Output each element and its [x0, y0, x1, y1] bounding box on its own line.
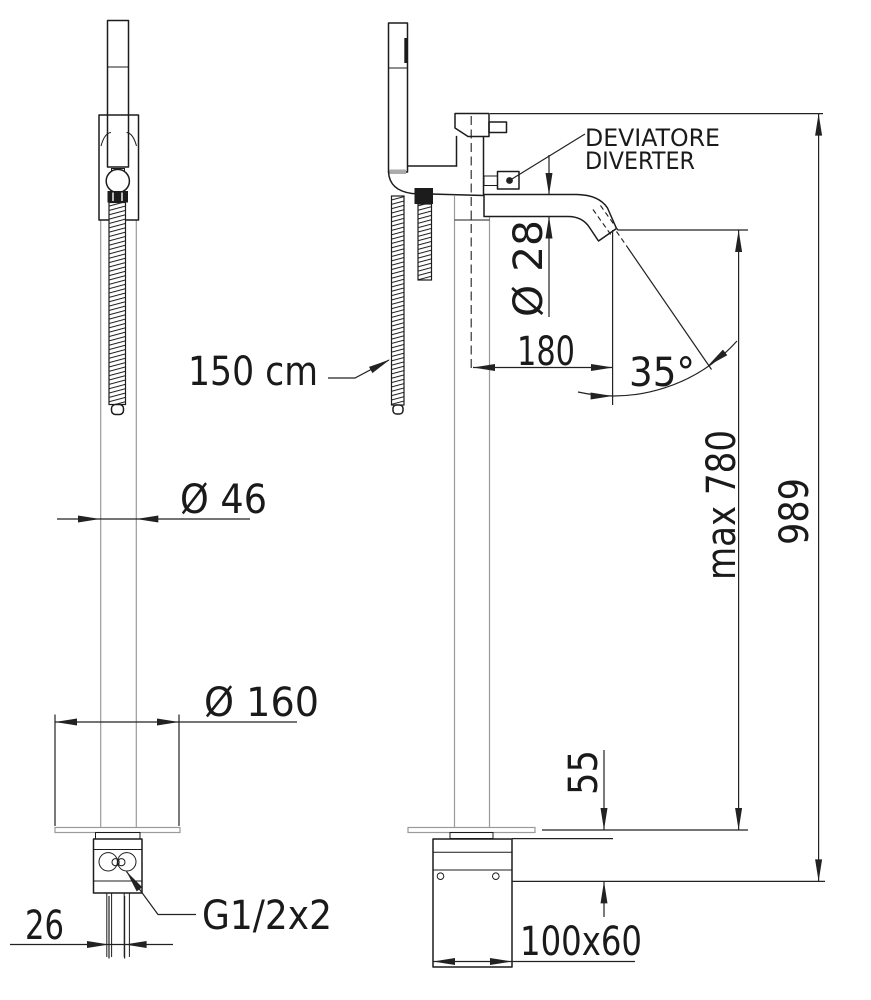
supply-pipes — [107, 893, 130, 957]
hose-end-cap-side — [393, 405, 403, 414]
base-plate-side — [408, 828, 535, 833]
inlet-spacing-label: 26 — [25, 903, 64, 949]
holder-fork-left — [101, 133, 111, 147]
inlet-port-left — [99, 853, 117, 871]
spout-reach-label: 180 — [517, 329, 575, 375]
mixer-lever — [489, 122, 507, 133]
base-diameter-label: Ø 160 — [204, 680, 319, 726]
shower-hose-front — [109, 203, 126, 405]
hose-nut-slit — [112, 193, 113, 202]
hose-nut-slit — [121, 193, 122, 202]
dim-hose-length: 150 cm — [188, 349, 390, 395]
base-hub-front — [96, 833, 141, 840]
technical-drawing-page: 150 cm Ø 46 Ø 160 26 — [0, 0, 871, 1000]
arm-bottom-edge — [389, 172, 485, 196]
base-hub-side — [450, 833, 493, 839]
hose-length-label: 150 cm — [188, 349, 318, 395]
box-screw — [493, 873, 500, 880]
dim-base-diameter: Ø 160 — [55, 680, 319, 826]
shower-grip-shade — [390, 170, 407, 175]
floor-offset-label: 55 — [561, 750, 607, 795]
mounting-box-side — [433, 839, 512, 967]
hose-nut-side — [415, 188, 434, 204]
hose-end-cap-front — [112, 405, 124, 415]
dim-column-diameter: Ø 46 — [57, 477, 267, 523]
column-diameter-label: Ø 46 — [180, 477, 267, 523]
inlet-thread-label: G1/2x2 — [202, 893, 332, 939]
ball-joint — [106, 169, 129, 192]
box-screw — [437, 873, 444, 880]
hand-shower-front — [108, 21, 129, 168]
spout-height-label: max 780 — [699, 430, 745, 580]
leader-dot — [506, 177, 513, 184]
dim-spout-reach: 180 — [473, 329, 613, 375]
dim-floor-offset: 55 — [512, 750, 613, 917]
shower-button — [404, 38, 407, 63]
dim-inlet-thread: G1/2x2 — [127, 872, 333, 940]
dim-inlet-spacing: 26 — [10, 896, 173, 959]
diverter-label-en: DIVERTER — [585, 147, 695, 175]
leader-arrowhead — [369, 360, 390, 374]
mounting-box-label: 100x60 — [520, 919, 642, 965]
total-height-label: 989 — [772, 478, 818, 545]
dim-spout-height: max 780 — [542, 230, 748, 830]
mixer-handle-head — [455, 114, 489, 137]
base-plate-front — [55, 828, 180, 833]
dim-mounting-box: 100x60 — [433, 919, 642, 965]
dim-spout-angle: 35° — [578, 230, 737, 405]
hose-nut-front — [108, 191, 129, 203]
diverter-stem — [484, 176, 498, 186]
shower-hose-side-long — [392, 196, 405, 405]
inlet-port-right — [118, 853, 136, 871]
hose-stub-side — [418, 204, 432, 280]
note-diverter: DEVIATORE DIVERTER — [506, 124, 720, 184]
bath-mixer-dimension-drawing: 150 cm Ø 46 Ø 160 26 — [0, 0, 871, 1000]
front-view — [55, 21, 180, 958]
spout-diameter-label: Ø 28 — [506, 220, 552, 317]
spout-angle-label: 35° — [629, 350, 695, 396]
